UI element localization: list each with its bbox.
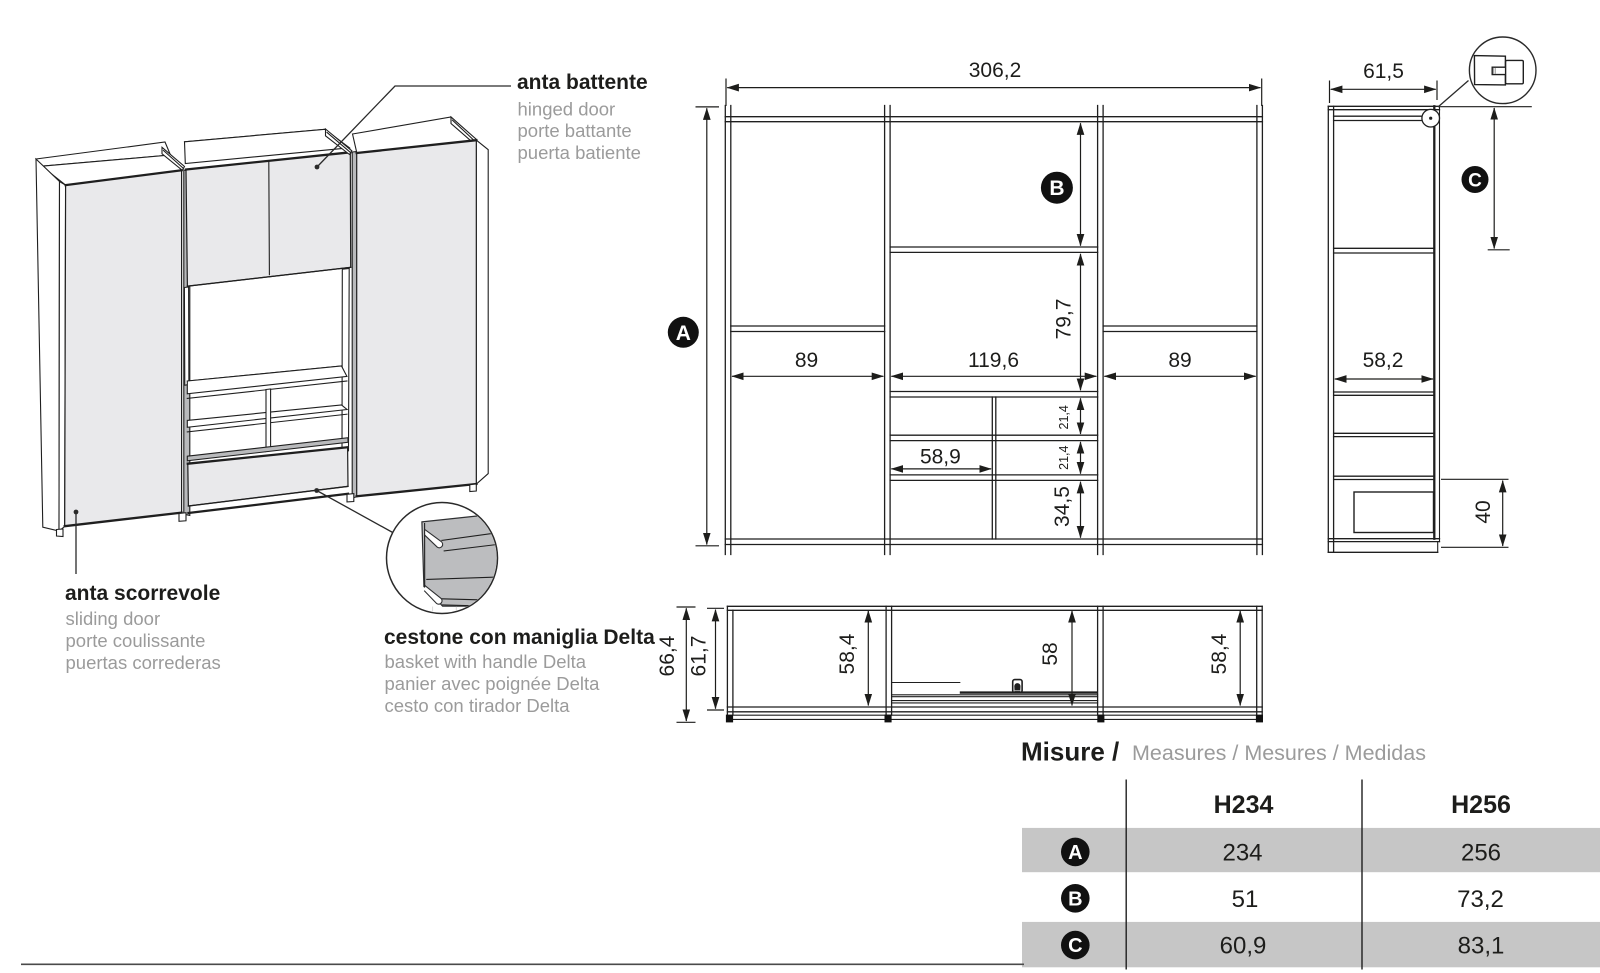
svg-text:51: 51 bbox=[1232, 886, 1259, 913]
svg-text:porte battante: porte battante bbox=[518, 120, 632, 141]
svg-text:H256: H256 bbox=[1451, 791, 1511, 819]
svg-text:Measures / Mesures / Medidas: Measures / Mesures / Medidas bbox=[1132, 741, 1426, 765]
svg-text:A: A bbox=[1068, 842, 1082, 864]
svg-text:58,4: 58,4 bbox=[836, 633, 859, 674]
svg-text:B: B bbox=[1049, 177, 1064, 200]
svg-text:C: C bbox=[1468, 171, 1482, 192]
svg-text:H234: H234 bbox=[1214, 791, 1274, 819]
svg-text:83,1: 83,1 bbox=[1458, 933, 1505, 960]
svg-text:256: 256 bbox=[1461, 839, 1501, 866]
svg-text:sliding door: sliding door bbox=[66, 608, 161, 629]
svg-text:34,5: 34,5 bbox=[1051, 486, 1074, 527]
svg-text:60,9: 60,9 bbox=[1220, 933, 1267, 960]
svg-text:61,7: 61,7 bbox=[687, 636, 710, 677]
svg-text:Misure /: Misure / bbox=[1021, 737, 1119, 767]
svg-text:58,2: 58,2 bbox=[1363, 349, 1404, 372]
svg-text:89: 89 bbox=[1168, 349, 1191, 372]
svg-text:anta scorrevole: anta scorrevole bbox=[65, 582, 220, 605]
svg-text:anta battente: anta battente bbox=[517, 71, 648, 94]
svg-text:58,9: 58,9 bbox=[920, 446, 961, 469]
svg-text:puerta batiente: puerta batiente bbox=[518, 142, 641, 163]
svg-text:58: 58 bbox=[1039, 642, 1062, 665]
svg-text:cestone con maniglia Delta: cestone con maniglia Delta bbox=[384, 626, 655, 649]
svg-text:79,7: 79,7 bbox=[1053, 299, 1076, 340]
svg-text:66,4: 66,4 bbox=[656, 635, 679, 676]
svg-text:21,4: 21,4 bbox=[1057, 445, 1071, 469]
svg-text:porte coulissante: porte coulissante bbox=[66, 630, 206, 651]
svg-text:21,4: 21,4 bbox=[1057, 405, 1071, 429]
svg-text:puertas correderas: puertas correderas bbox=[66, 652, 221, 673]
svg-text:119,6: 119,6 bbox=[968, 349, 1019, 372]
svg-text:234: 234 bbox=[1222, 839, 1262, 866]
svg-text:89: 89 bbox=[795, 349, 818, 372]
svg-text:61,5: 61,5 bbox=[1363, 60, 1404, 83]
svg-text:cesto con tirador Delta: cesto con tirador Delta bbox=[385, 695, 571, 716]
svg-text:40: 40 bbox=[1472, 500, 1495, 523]
svg-text:C: C bbox=[1068, 935, 1082, 957]
svg-text:73,2: 73,2 bbox=[1457, 886, 1504, 913]
svg-text:basket with handle Delta: basket with handle Delta bbox=[385, 651, 587, 672]
svg-text:306,2: 306,2 bbox=[969, 59, 1022, 82]
svg-text:hinged door: hinged door bbox=[518, 99, 616, 120]
svg-text:A: A bbox=[676, 322, 691, 345]
svg-text:58,4: 58,4 bbox=[1208, 633, 1231, 674]
svg-text:panier avec poignée Delta: panier avec poignée Delta bbox=[385, 673, 601, 694]
svg-text:B: B bbox=[1068, 888, 1082, 910]
